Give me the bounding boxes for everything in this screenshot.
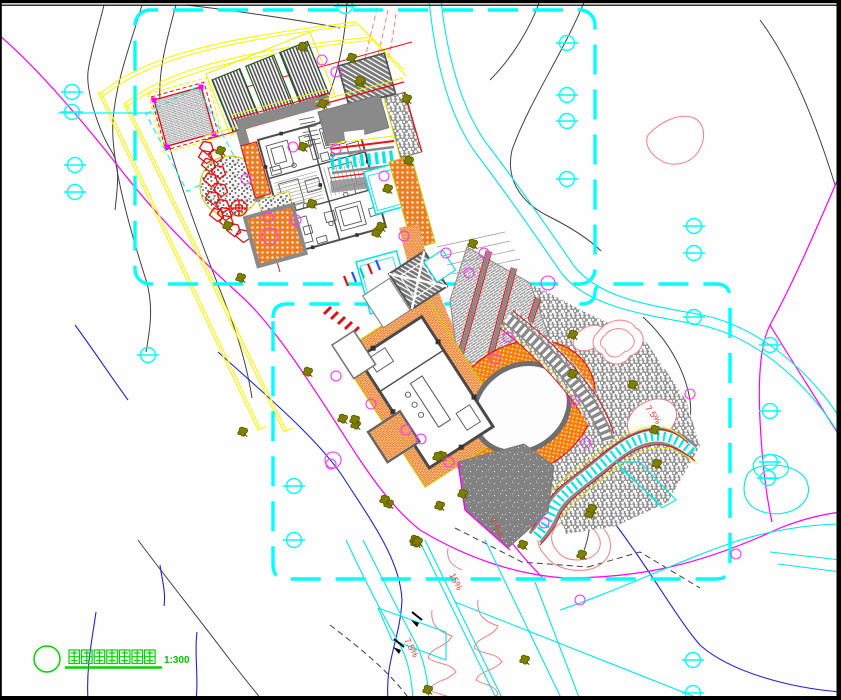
svg-text:1:300: 1:300 [164,655,190,666]
